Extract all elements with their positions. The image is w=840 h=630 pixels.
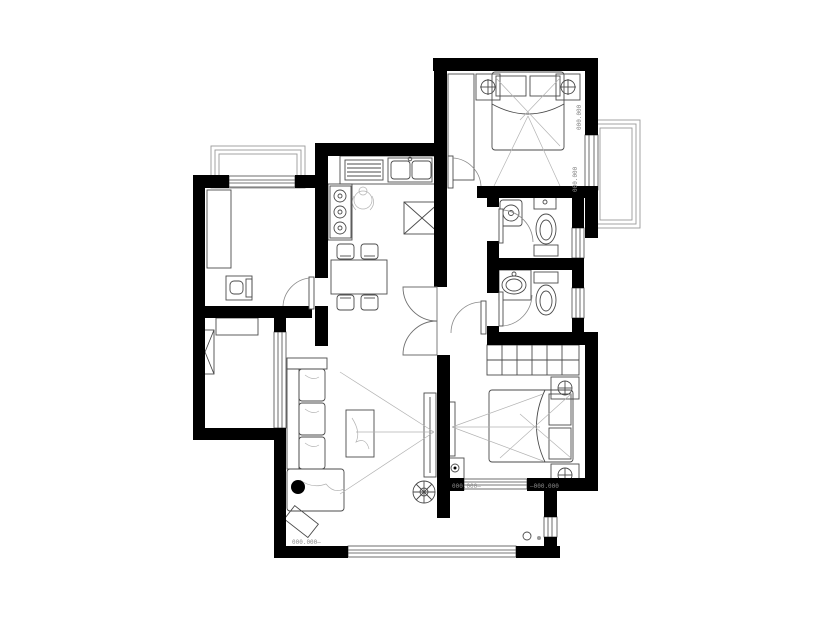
floor-plan-svg: 000.000— 000.000— —000.000 000.000 000.0…	[0, 0, 840, 630]
chair	[337, 295, 354, 310]
window-living-south	[348, 546, 516, 557]
nightstand-top	[551, 377, 579, 399]
chair	[337, 244, 354, 259]
dim-label: 000.000—	[452, 483, 481, 490]
window-bedroom-top-balcony	[585, 135, 598, 190]
window-bath-lower	[572, 288, 584, 318]
dim-label: —000.000	[530, 483, 559, 490]
chair	[361, 295, 378, 310]
window-utility	[544, 517, 557, 537]
floor-plan-page: 000.000— 000.000— —000.000 000.000 000.0…	[0, 0, 840, 630]
plant	[413, 481, 435, 503]
window-study-north	[229, 176, 295, 187]
window-living-west	[274, 332, 286, 428]
dim-label: 000.000	[576, 104, 583, 130]
double-sink	[388, 157, 432, 182]
window-bath-upper	[572, 228, 584, 258]
chair	[361, 244, 378, 259]
dim-label: 000.000—	[292, 539, 321, 546]
dim-label: 000.000	[572, 166, 579, 192]
cushion-dot	[291, 480, 305, 494]
floor-drain-icon	[537, 536, 541, 540]
